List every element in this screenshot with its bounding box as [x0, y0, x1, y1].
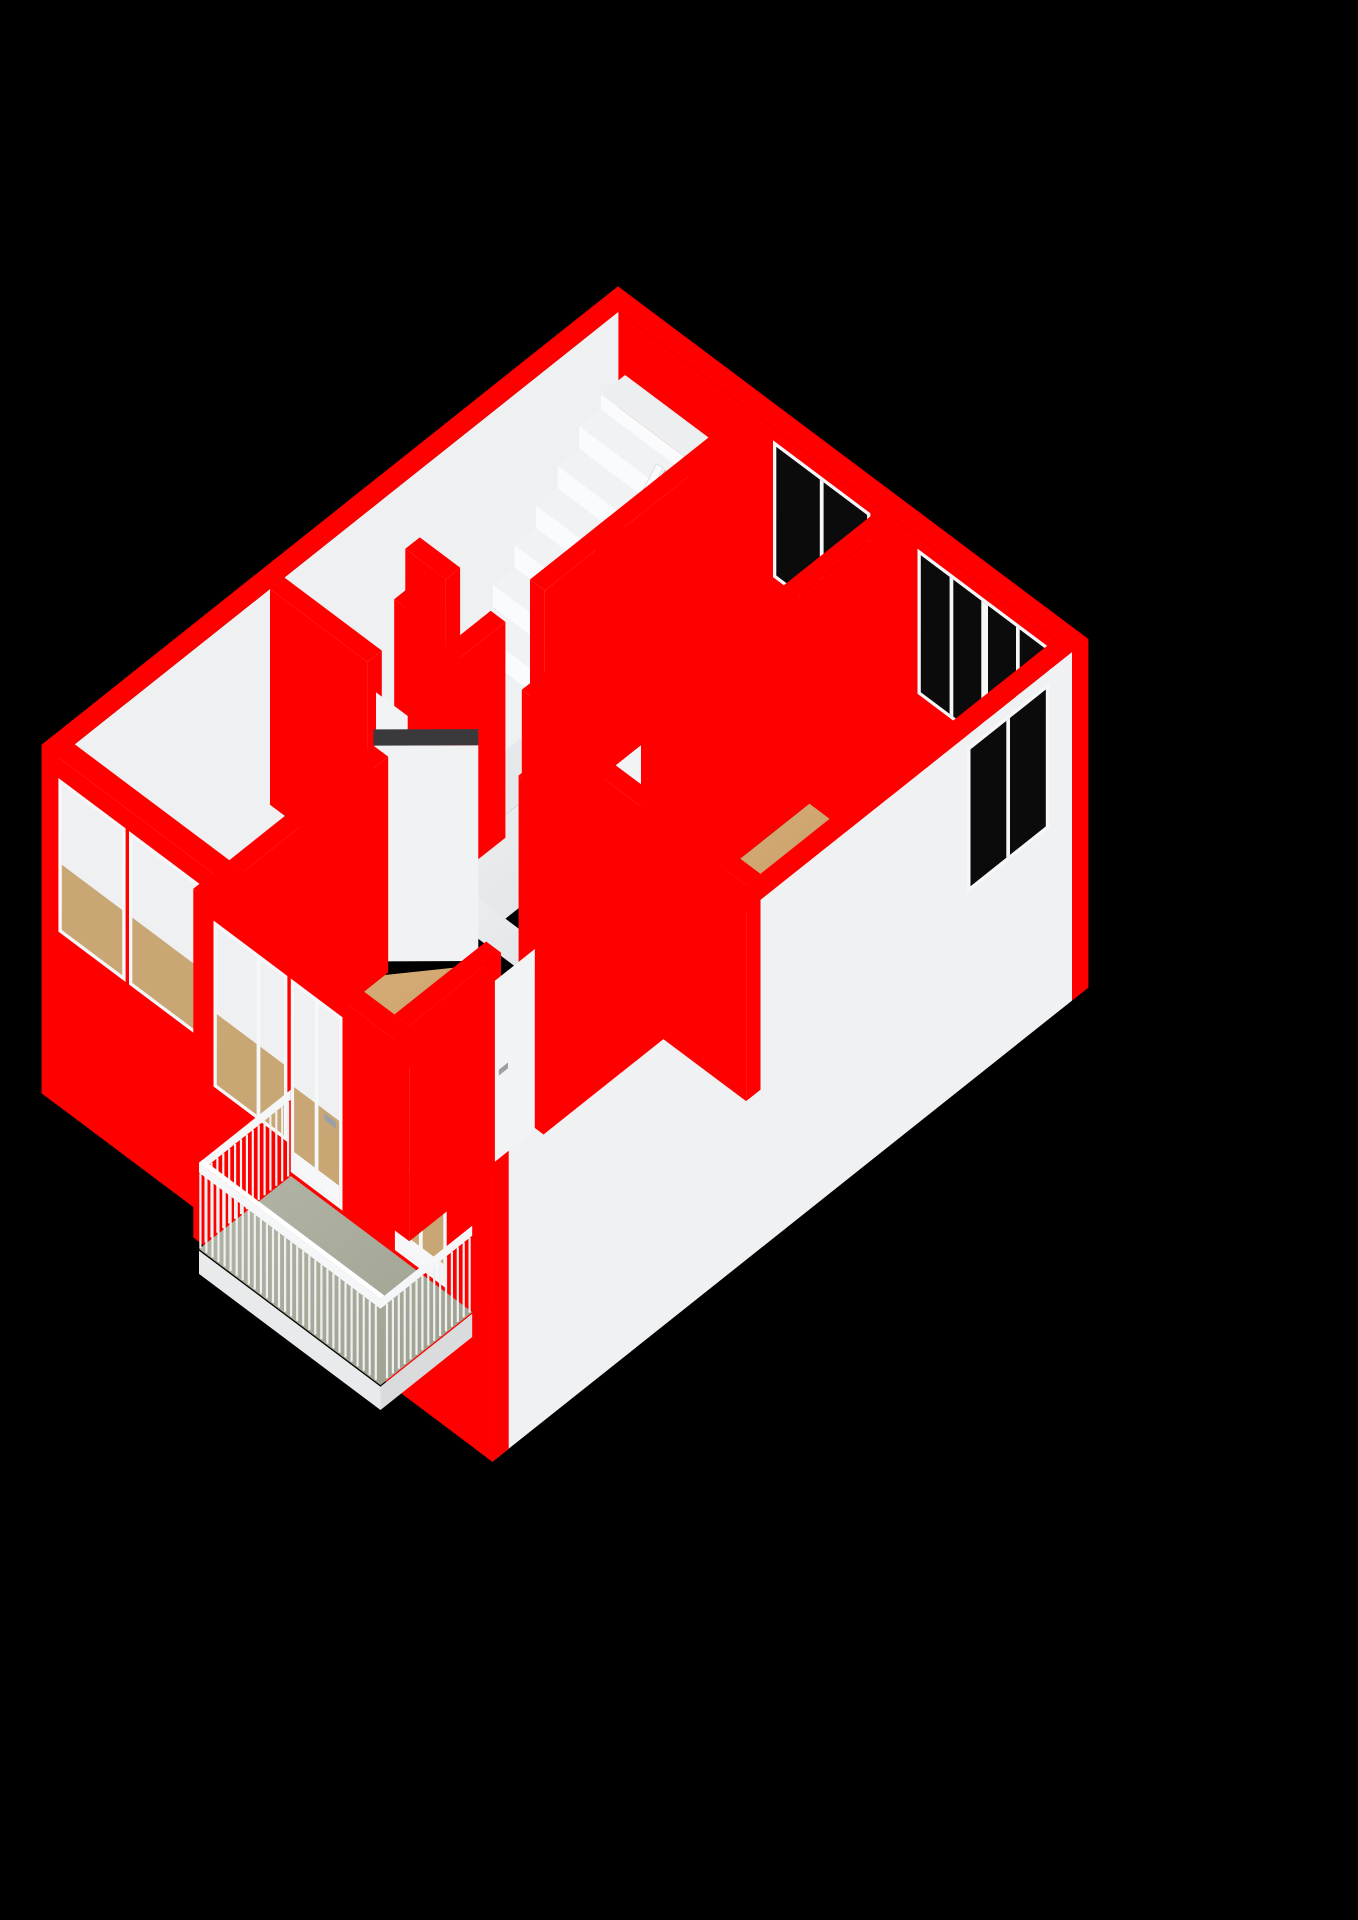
- floor-plan-3d-render[interactable]: [0, 0, 1358, 1920]
- wall-living-chamfer: [373, 729, 478, 961]
- floor-plan-viewport: [0, 0, 1358, 1920]
